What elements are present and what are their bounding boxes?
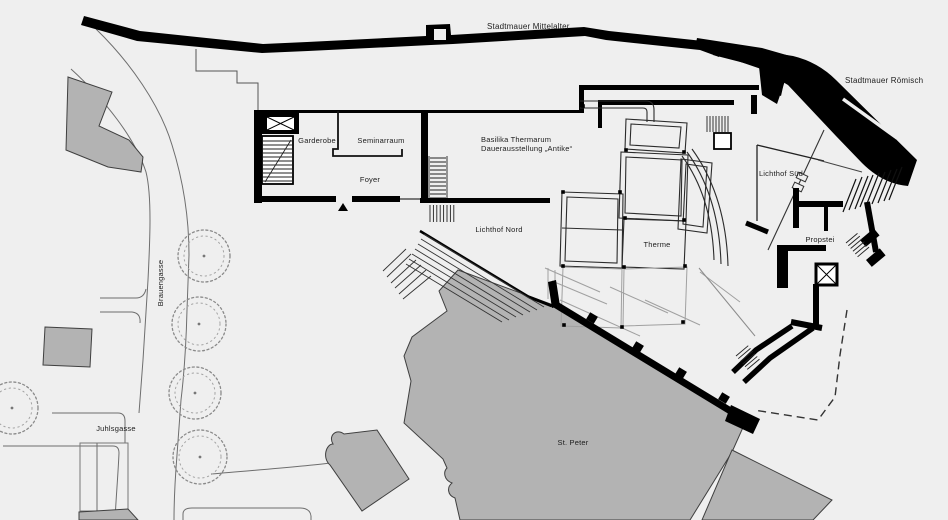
site-plan-drawing: Stadtmauer Mittelalter Stadtmauer Römisc…: [0, 0, 948, 520]
elevator-icon: [262, 113, 299, 134]
label-seminarraum: Seminarraum: [357, 136, 404, 145]
label-stadtmauer-roemisch: Stadtmauer Römisch: [845, 76, 923, 85]
label-brauengasse: Brauengasse: [156, 260, 165, 306]
label-basilika-line1: Basilika Thermarum: [481, 135, 551, 144]
label-stadtmauer-mittelalter: Stadtmauer Mittelalter: [487, 22, 570, 31]
elevator-propstei-icon: [816, 264, 837, 285]
label-lichthof-sued: Lichthof Süd: [759, 169, 803, 178]
label-juhlsgasse: Juhlsgasse: [96, 424, 136, 433]
label-foyer: Foyer: [360, 175, 380, 184]
label-therme: Therme: [643, 240, 670, 249]
stairs-entrance-icon: [262, 136, 293, 184]
building-left-small: [43, 327, 92, 367]
label-basilika-line2: Dauerausstellung „Antike“: [481, 144, 573, 153]
label-garderobe: Garderobe: [298, 136, 336, 145]
wall-bastion-notch: [434, 29, 446, 40]
site-plan: Stadtmauer Mittelalter Stadtmauer Römisc…: [0, 0, 948, 520]
label-st-peter: St. Peter: [558, 438, 589, 447]
label-lichthof-nord: Lichthof Nord: [475, 225, 522, 234]
label-propstei: Propstei: [805, 235, 834, 244]
